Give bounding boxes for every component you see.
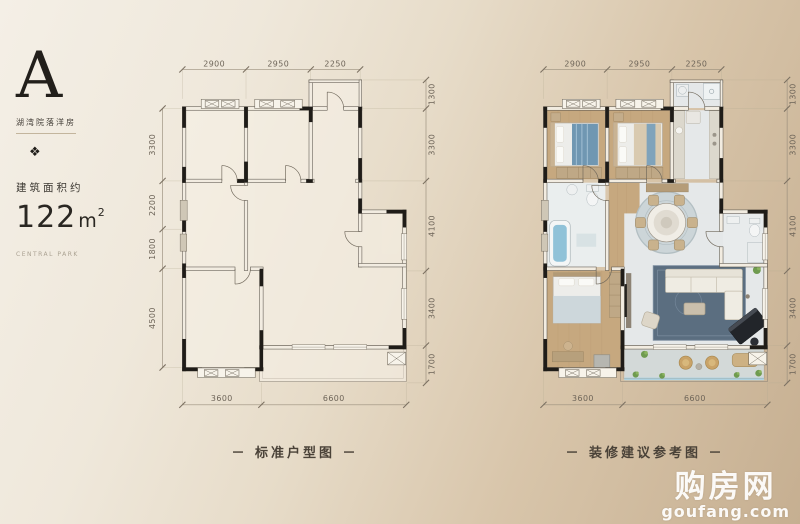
area-unit: m <box>78 210 98 232</box>
watermark-cn: 购房网 <box>661 471 790 504</box>
furnished-floor-plan-svg <box>528 58 800 418</box>
standard-floor-plan <box>136 58 446 418</box>
site-watermark: 购房网 goufang.com <box>661 471 790 521</box>
unit-type-subtitle: 湖湾院落洋房 <box>16 117 76 134</box>
furnished-plan-caption: － 装修建议参考图 － <box>520 442 770 461</box>
standard-floor-plan-svg <box>136 58 446 418</box>
floorplan-page: 2900 2950 2250 1300 3300 4100 3400 1700 … <box>0 0 800 524</box>
standard-plan-caption: － 标准户型图 － <box>150 442 440 461</box>
watermark-en: goufang.com <box>661 502 790 521</box>
dims-left <box>148 105 181 370</box>
area-exponent: 2 <box>98 206 106 219</box>
furnished-floor-plan <box>528 58 800 418</box>
plain-floor <box>182 80 406 382</box>
area-number: 122 <box>16 200 76 235</box>
furniture <box>547 80 774 380</box>
